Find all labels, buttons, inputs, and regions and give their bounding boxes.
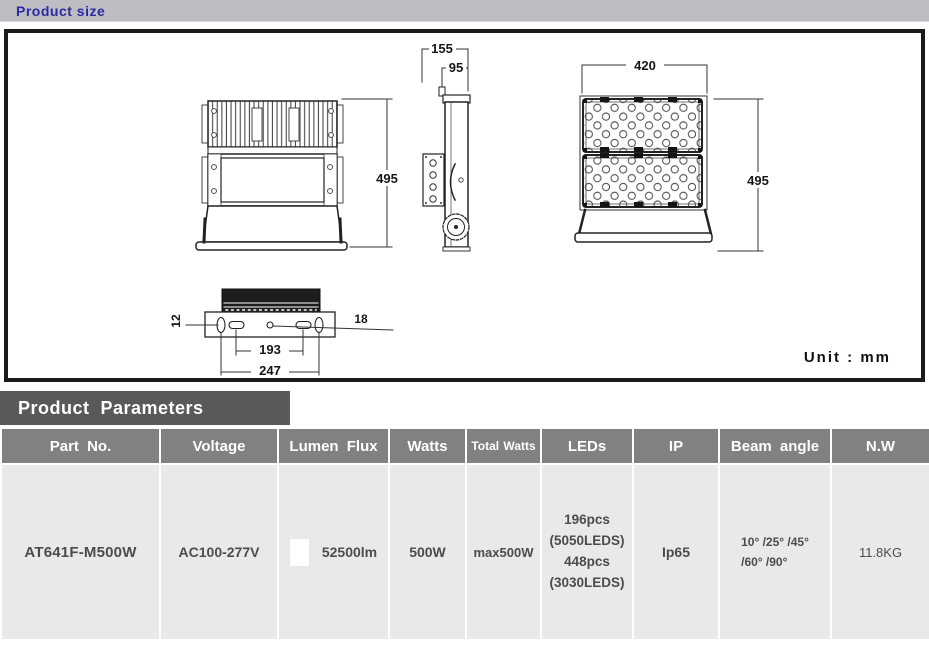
col-part-no: Part No. (1, 428, 160, 464)
front-view-drawing: 420 (575, 57, 777, 251)
product-size-header: Product size (0, 0, 929, 22)
col-nw: N.W (831, 428, 929, 464)
col-lumen-flux: Lumen Flux (278, 428, 389, 464)
col-watts: Watts (389, 428, 466, 464)
dim-bracket-thickness: 12 (169, 314, 183, 328)
white-swatch-icon (290, 539, 309, 566)
dim-front-height: 495 (747, 173, 769, 188)
parameters-table: Part No. Voltage Lumen Flux Watts Total … (0, 427, 929, 641)
dim-slot-spacing: 193 (259, 342, 281, 357)
dim-side-body: 95 (449, 60, 463, 75)
table-row: AT641F-M500W AC100-277V 52500lm 500W max… (1, 464, 929, 640)
dim-bracket-hole: 18 (354, 312, 368, 326)
cell-total-watts: max500W (466, 464, 541, 640)
leds-line: 448pcs (542, 552, 632, 573)
cell-ip: Ip65 (633, 464, 719, 640)
product-parameters-header: Product Parameters (0, 391, 290, 425)
cell-part-no: AT641F-M500W (1, 464, 160, 640)
leds-line: (5050LEDS) (542, 531, 632, 552)
col-total-watts: Total Watts (466, 428, 541, 464)
page-title: Product size (16, 3, 105, 19)
dim-back-height: 495 (376, 171, 398, 186)
cell-net-weight: 11.8KG (831, 464, 929, 640)
cell-voltage: AC100-277V (160, 464, 278, 640)
beam-angle-line: 10° /25° /45° (741, 532, 809, 552)
bottom-view-drawing: 12 18 193 247 (169, 289, 393, 378)
beam-angle-line: /60° /90° (741, 552, 809, 572)
drawing-panel: 495 155 95 (4, 29, 925, 382)
lumen-value: 52500lm (322, 544, 377, 560)
cell-lumen-flux: 52500lm (278, 464, 389, 640)
back-view-drawing: 495 (196, 99, 406, 250)
cell-watts: 500W (389, 464, 466, 640)
dim-hole-spacing: 247 (259, 363, 281, 378)
parameters-title: Product Parameters (18, 398, 204, 419)
cell-leds: 196pcs (5050LEDS) 448pcs (3030LEDS) (541, 464, 633, 640)
col-beam-angle: Beam angle (719, 428, 831, 464)
col-voltage: Voltage (160, 428, 278, 464)
side-view-drawing: 155 95 (422, 41, 470, 251)
unit-label: Unit : mm (804, 349, 891, 366)
leds-line: 196pcs (542, 510, 632, 531)
col-leds: LEDs (541, 428, 633, 464)
product-drawings: 495 155 95 (8, 33, 921, 378)
dim-side-overall: 155 (431, 41, 453, 56)
col-ip: IP (633, 428, 719, 464)
table-header-row: Part No. Voltage Lumen Flux Watts Total … (1, 428, 929, 464)
dim-front-width: 420 (634, 58, 656, 73)
cell-beam-angle: 10° /25° /45° /60° /90° (719, 464, 831, 640)
leds-line: (3030LEDS) (542, 573, 632, 594)
